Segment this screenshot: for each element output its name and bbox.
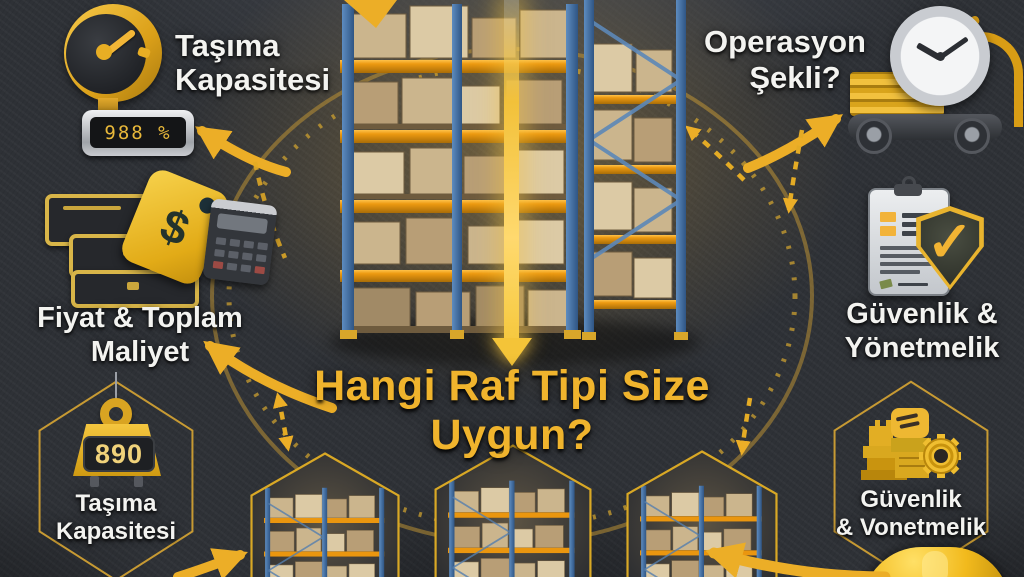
capacity-hexagon: 890 Taşıma Kapasitesi [38, 380, 194, 577]
weight-value: 890 [83, 436, 155, 472]
capacity-display-value: 988 % [90, 117, 186, 148]
label-bottom-left-1: Taşıma [38, 490, 194, 517]
clock-hub [936, 52, 945, 61]
clipboard-ring [902, 176, 916, 190]
hexagon-frame [434, 444, 592, 577]
infographic-canvas: Hangi Raf Tipi Size Uygun? 988 % Taşıma … [0, 0, 1024, 577]
page-title: Hangi Raf Tipi Size Uygun? [262, 362, 762, 460]
label-mid-left-2: Maliyet [10, 336, 270, 369]
label-mid-right-1: Güvenlik & [822, 298, 1022, 331]
price-icon-group: $ [45, 186, 275, 300]
weight-foot [90, 476, 99, 487]
calculator-keys [216, 237, 227, 245]
label-mid-right-2: Yönetmelik [822, 332, 1022, 365]
rack-option-hexagon-1 [250, 452, 400, 577]
dashed-arrow-right-ring [789, 130, 802, 210]
weight-foot [134, 476, 143, 487]
operation-icon-group [848, 6, 1018, 156]
hexagon-frame [626, 450, 778, 577]
hexagon-frame [250, 452, 400, 577]
dollar-sign: $ [153, 197, 197, 257]
light-beam [504, 0, 519, 340]
title-line-1: Hangi Raf Tipi Size [262, 362, 762, 411]
calculator-keys-red [213, 261, 224, 269]
dashed-arrow-topright-ring [688, 128, 744, 180]
arrow-to-operation [748, 119, 836, 168]
label-bottom-right-2: & Vonetmelik [833, 514, 989, 541]
rack-option-hexagon-2 [434, 444, 592, 577]
check-icon: ✓ [927, 211, 974, 273]
compliance-icon-group: ✓ [862, 180, 997, 296]
title-line-2: Uygun? [262, 411, 762, 460]
clock-icon [890, 6, 990, 106]
label-bottom-right-1: Güvenlik [833, 486, 989, 513]
label-top-left-1: Taşıma [175, 28, 280, 63]
gauge-hub [96, 44, 112, 60]
capacity-display: 988 % [82, 110, 194, 156]
machine-parts-icon [861, 402, 961, 486]
label-top-left-2: Kapasitesi [175, 62, 330, 97]
calculator-icon [202, 198, 277, 285]
truck-wheel [954, 118, 990, 154]
hard-hat-ridge [922, 551, 948, 577]
rack-option-hexagon-3 [626, 450, 778, 577]
label-mid-left-1: Fiyat & Toplam [10, 302, 270, 335]
truck-wheel [856, 118, 892, 154]
calculator-screen [217, 213, 268, 234]
label-bottom-left-2: Kapasitesi [38, 518, 194, 545]
